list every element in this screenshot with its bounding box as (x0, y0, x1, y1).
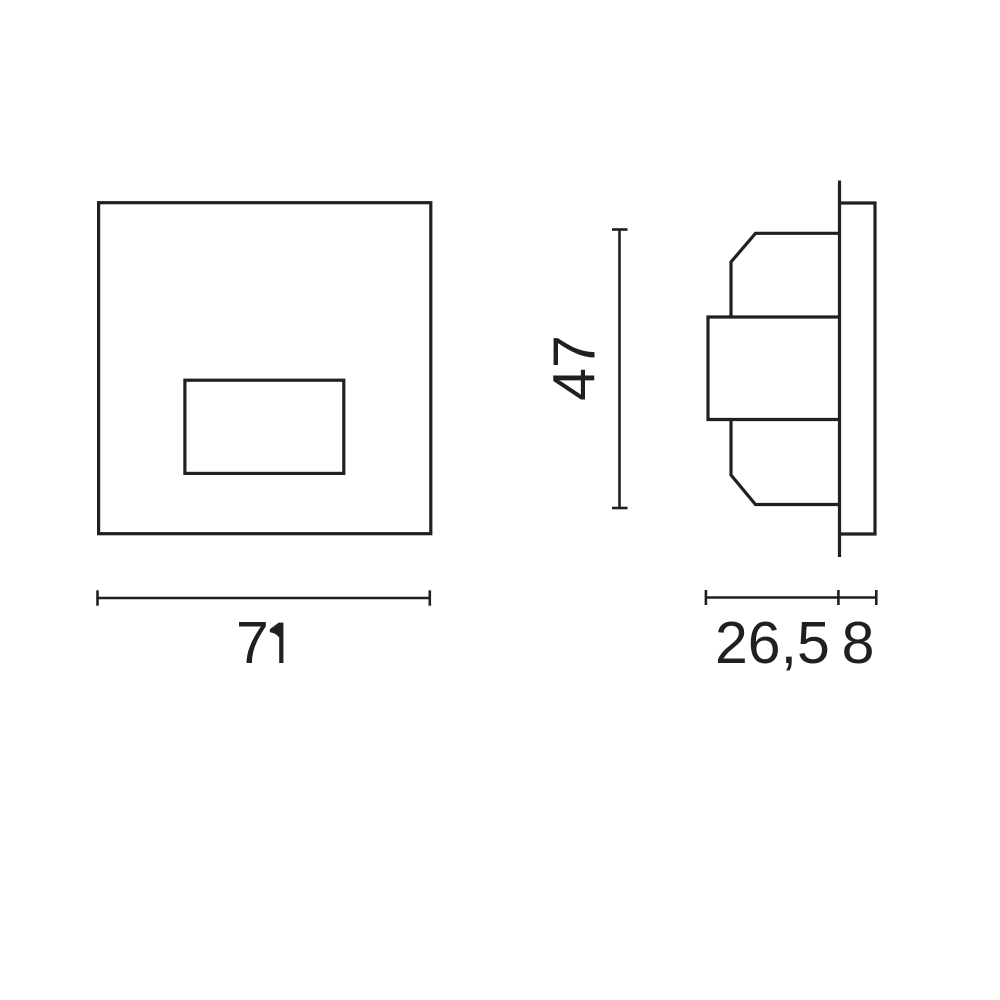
svg-text:8: 8 (842, 610, 875, 676)
svg-text:7: 7 (236, 610, 269, 676)
svg-text:47: 47 (542, 335, 608, 401)
svg-text:26,5: 26,5 (715, 610, 830, 676)
